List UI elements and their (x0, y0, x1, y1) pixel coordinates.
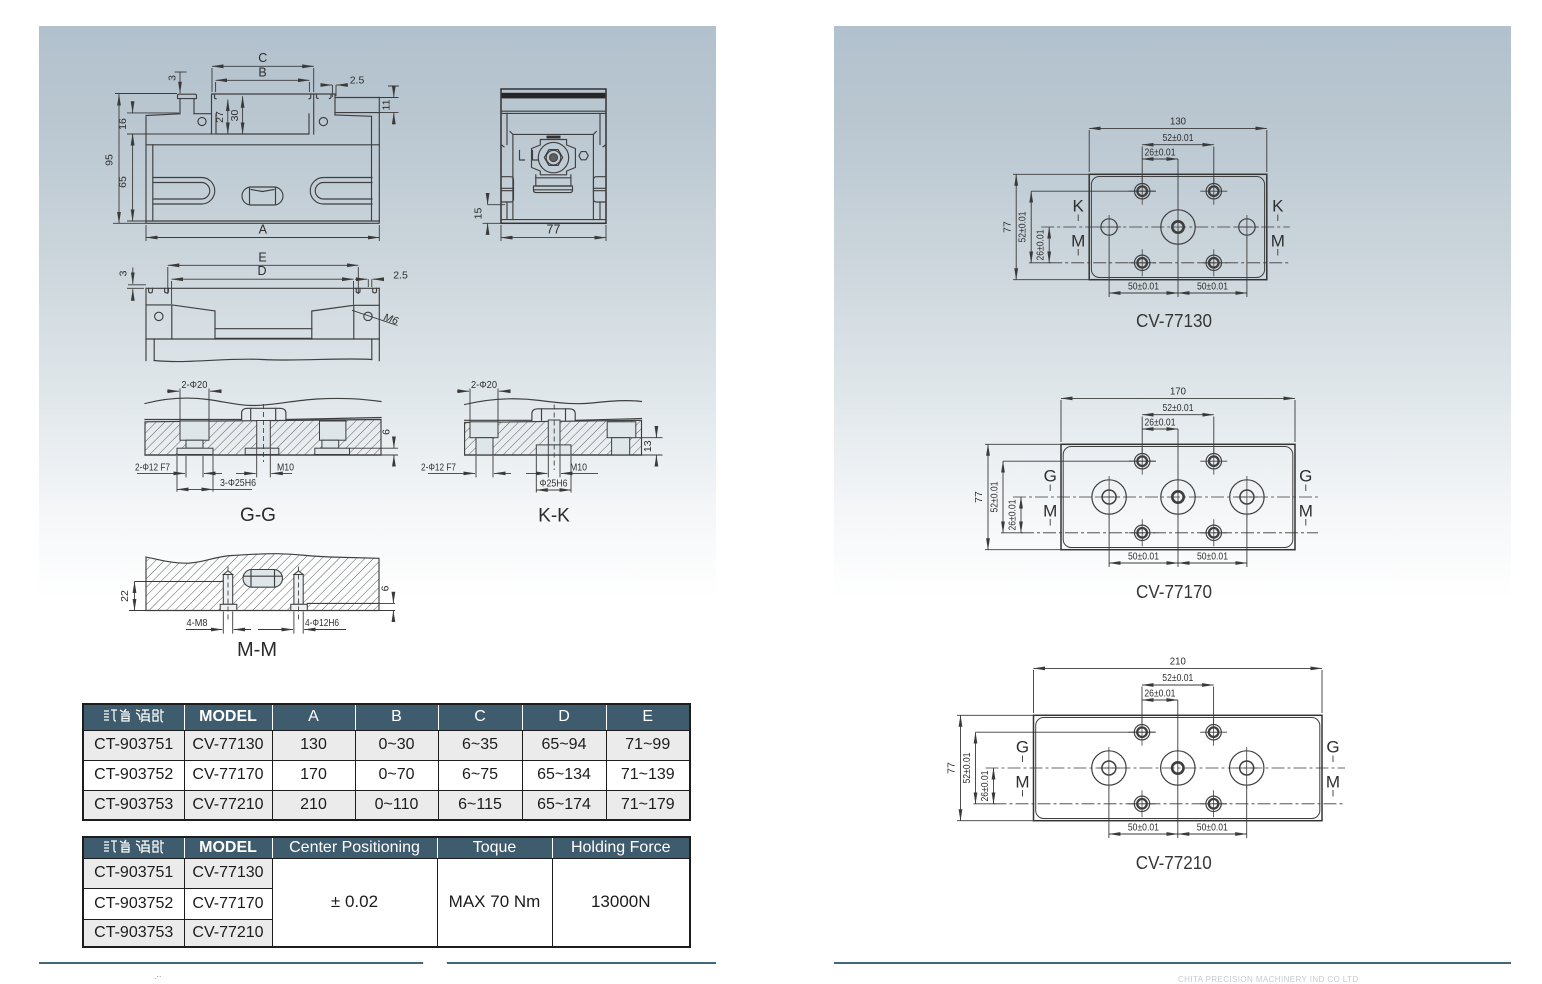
svg-text:C: C (258, 51, 267, 65)
svg-text:52±0.01: 52±0.01 (1163, 402, 1194, 414)
svg-text:26±0.01: 26±0.01 (1145, 147, 1176, 159)
svg-text:M: M (1326, 773, 1340, 792)
svg-text:50±0.01: 50±0.01 (1197, 821, 1228, 833)
svg-text:K: K (1073, 197, 1085, 216)
svg-text:77: 77 (547, 223, 561, 237)
svg-text:G-G: G-G (240, 505, 276, 526)
svg-text:95: 95 (104, 154, 116, 166)
svg-text:G: G (1044, 467, 1057, 486)
svg-text:11: 11 (381, 99, 393, 110)
svg-text:26±0.01: 26±0.01 (979, 770, 991, 801)
svg-text:E: E (258, 250, 266, 264)
svg-text:15: 15 (472, 208, 484, 220)
svg-text:4-Φ12H6: 4-Φ12H6 (305, 617, 339, 629)
svg-text:77: 77 (946, 762, 958, 774)
svg-text:M: M (1271, 232, 1285, 251)
svg-text:30: 30 (229, 110, 241, 122)
svg-text:50±0.01: 50±0.01 (1128, 280, 1159, 292)
svg-text:13: 13 (642, 440, 654, 452)
svg-text:170: 170 (1170, 385, 1186, 397)
svg-text:3: 3 (167, 75, 179, 81)
svg-text:65: 65 (117, 176, 129, 188)
svg-text:52±0.01: 52±0.01 (1017, 211, 1029, 242)
svg-text:6: 6 (380, 429, 392, 435)
svg-text:K: K (1272, 197, 1284, 216)
svg-text:M: M (1015, 773, 1029, 792)
svg-text:D: D (257, 264, 266, 278)
svg-text:2.5: 2.5 (350, 75, 365, 87)
svg-text:210: 210 (1170, 655, 1186, 667)
svg-text:27: 27 (214, 111, 226, 123)
svg-text:G: G (1299, 467, 1312, 486)
svg-text:26±0.01: 26±0.01 (1035, 229, 1047, 260)
svg-text:22: 22 (119, 590, 131, 602)
svg-text:2-Φ20: 2-Φ20 (471, 379, 497, 391)
svg-text:4-M8: 4-M8 (187, 617, 208, 629)
svg-text:6: 6 (379, 585, 391, 591)
svg-text:K-K: K-K (538, 506, 570, 527)
svg-text:52±0.01: 52±0.01 (988, 481, 1000, 512)
svg-text:Φ25H6: Φ25H6 (540, 478, 568, 490)
svg-text:52±0.01: 52±0.01 (1162, 672, 1193, 684)
svg-text:77: 77 (1001, 221, 1013, 233)
svg-text:B: B (258, 66, 266, 80)
svg-text:26±0.01: 26±0.01 (1145, 417, 1176, 429)
svg-text:50±0.01: 50±0.01 (1128, 821, 1159, 833)
svg-text:26±0.01: 26±0.01 (1006, 499, 1018, 530)
svg-text:26±0.01: 26±0.01 (1144, 688, 1175, 700)
svg-text:M: M (1043, 502, 1057, 521)
svg-text:52±0.01: 52±0.01 (961, 752, 973, 783)
svg-text:2-Φ12 F7: 2-Φ12 F7 (135, 462, 170, 474)
svg-text:3-Φ25H6: 3-Φ25H6 (220, 477, 256, 489)
svg-text:M10: M10 (570, 461, 587, 473)
svg-text:CV-77130: CV-77130 (1136, 311, 1212, 331)
svg-text:50±0.01: 50±0.01 (1197, 280, 1228, 292)
svg-text:G: G (1326, 738, 1339, 757)
svg-text:2.5: 2.5 (393, 270, 408, 282)
svg-text:50±0.01: 50±0.01 (1128, 550, 1159, 562)
svg-text:2-Φ12 F7: 2-Φ12 F7 (421, 462, 456, 474)
svg-text:CV-77210: CV-77210 (1136, 853, 1212, 873)
svg-text:M10: M10 (277, 461, 294, 473)
svg-text:M: M (1071, 232, 1085, 251)
svg-text:3: 3 (118, 270, 130, 276)
svg-text:A: A (259, 223, 268, 237)
svg-text:G: G (1016, 738, 1029, 757)
svg-text:2-Φ20: 2-Φ20 (181, 379, 207, 391)
svg-text:50±0.01: 50±0.01 (1197, 550, 1228, 562)
svg-text:130: 130 (1170, 115, 1186, 127)
svg-text:52±0.01: 52±0.01 (1163, 132, 1194, 144)
svg-text:CV-77170: CV-77170 (1136, 582, 1212, 602)
svg-text:M-M: M-M (237, 639, 277, 661)
svg-text:M: M (1299, 502, 1313, 521)
svg-text:77: 77 (973, 491, 985, 503)
